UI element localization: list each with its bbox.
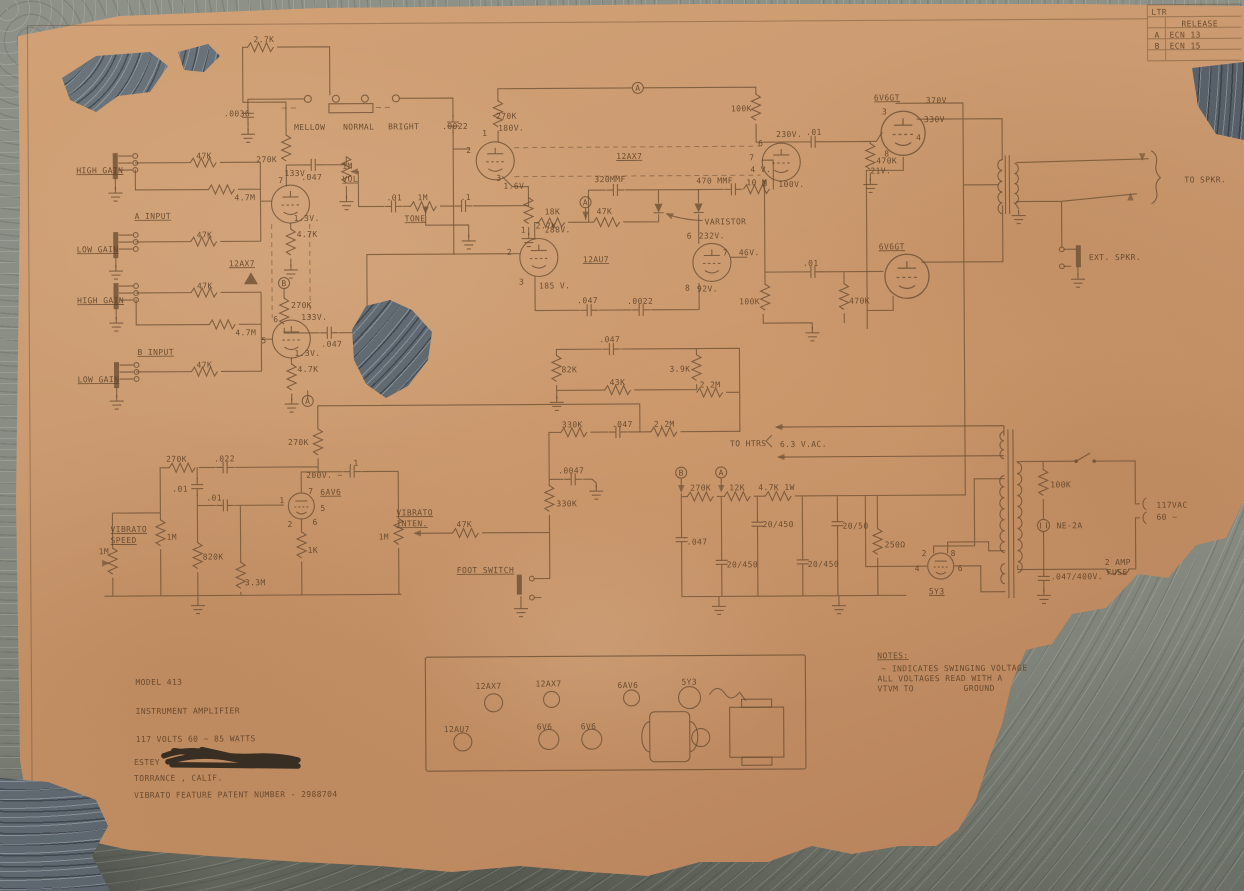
- schematic-label: 10 M: [746, 178, 767, 187]
- schematic-label: 12AX7: [535, 679, 561, 688]
- tube-6av6: [288, 493, 314, 519]
- schematic-label: 6: [687, 232, 692, 241]
- schematic-label: ALL VOLTAGES READ WITH A: [877, 674, 1002, 684]
- schematic-label: 270K: [690, 483, 711, 492]
- schematic-label: 20/450: [727, 560, 758, 569]
- schematic-label: RELEASE: [1181, 19, 1218, 28]
- schematic-label: VIBRATO: [110, 525, 147, 534]
- schematic-label: 20/450: [762, 520, 793, 529]
- warning-triangle-icon: [244, 272, 258, 284]
- schematic-label: 21V.: [870, 166, 891, 175]
- schematic-label: 1M: [99, 547, 109, 556]
- schematic-label: .0022: [627, 297, 653, 306]
- schematic-label: 5: [320, 504, 325, 513]
- schematic-label: 2.7K: [253, 35, 274, 44]
- schematic-label: ESTEY: [134, 758, 160, 767]
- schematic-label: 60 ~: [1156, 513, 1177, 522]
- schematic-label: .047: [599, 335, 620, 344]
- schematic-label: 1: [521, 226, 526, 235]
- schematic-label: 46V.: [739, 248, 760, 257]
- schematic-label: 7: [308, 487, 313, 496]
- schematic-label: 4.7K: [297, 230, 318, 239]
- schematic-label: 1K: [308, 546, 318, 555]
- schematic-label: 2: [922, 549, 927, 558]
- schematic-label: 6: [958, 564, 963, 573]
- schematic-label: 1: [482, 129, 487, 138]
- schematic-label: 12K: [729, 483, 745, 492]
- schematic-label: 47K: [456, 520, 472, 529]
- schematic-label: 82K: [562, 365, 578, 374]
- schematic-label: 7: [278, 176, 283, 185]
- schematic-label: 117VAC: [1156, 501, 1187, 510]
- schematic-label: 5: [261, 336, 266, 345]
- schematic-label: TONE: [405, 214, 426, 223]
- schematic-label: 12AX7: [475, 682, 501, 691]
- schematic-label: 5Y3: [681, 678, 697, 687]
- schematic-label: 230V.: [776, 130, 802, 139]
- schematic-label: 43K: [610, 378, 626, 387]
- schematic-label: .0047: [558, 466, 584, 475]
- schematic-label: TO HTRS: [730, 439, 767, 448]
- schematic-label: .0022: [442, 122, 468, 131]
- schematic-label: MODEL 413: [135, 678, 182, 687]
- schematic-label: 100K: [731, 104, 752, 113]
- schematic-label: 4.7M: [235, 328, 256, 337]
- schematic-label: 270K: [166, 455, 187, 464]
- schematic-label: 470K: [849, 296, 870, 305]
- schematic-label: 320MMF: [594, 175, 625, 184]
- schematic-label: .01: [806, 128, 822, 137]
- schematic-label: 47K: [197, 281, 213, 290]
- schematic-label: 330K: [562, 420, 583, 429]
- schematic-label: ECN 13: [1169, 30, 1200, 39]
- schematic-label: GROUND: [963, 684, 994, 693]
- schematic-label: 2: [287, 520, 292, 529]
- schematic-label: 92V.: [697, 284, 718, 293]
- schematic-label: 1M: [342, 162, 352, 171]
- photo-of-schematic: HIGH GAINLOW GAINHIGH GAINLOW GAINA INPU…: [0, 0, 1244, 891]
- schematic-svg: HIGH GAINLOW GAINHIGH GAINLOW GAINA INPU…: [0, 0, 1244, 891]
- schematic-label: 4.7K: [298, 365, 319, 374]
- schematic-label: MELLOW: [294, 123, 325, 132]
- schematic-label: .01: [172, 485, 188, 494]
- schematic-label: 12AU7: [583, 255, 609, 264]
- schematic-label: LOW GAIN: [78, 375, 120, 384]
- schematic-label: SPEED: [111, 536, 137, 545]
- tube-12ax7-d: [762, 143, 800, 181]
- power-supply-section: [675, 465, 1005, 615]
- schematic-label: 3.9K: [670, 365, 691, 374]
- schematic-label: B: [679, 469, 684, 478]
- schematic-label: 1.3V.: [294, 349, 320, 358]
- schematic-label: 200V. ~: [306, 471, 343, 480]
- schematic-label: 47K: [196, 151, 212, 160]
- schematic-label: LTR: [1151, 8, 1167, 17]
- tube-12ax7-c: [476, 142, 514, 180]
- schematic-label: 330V: [924, 115, 945, 124]
- schematic-label: .047: [321, 340, 342, 349]
- schematic-label: VIBRATO: [396, 508, 433, 517]
- schematic-label: TORRANCE , CALIF.: [134, 773, 223, 783]
- schematic-label: .047: [612, 420, 633, 429]
- schematic-label: 1M: [379, 532, 389, 541]
- schematic-label: A: [583, 198, 588, 207]
- schematic-label: .01: [206, 493, 222, 502]
- schematic-label: 2: [507, 248, 512, 257]
- vibrato-injection-section: [414, 424, 1005, 618]
- schematic-label: 2: [466, 146, 471, 155]
- schematic-label: 470 MMF: [696, 176, 733, 185]
- chassis-layout-section: [425, 655, 806, 771]
- schematic-label: 6: [312, 518, 317, 527]
- schematic-label: .01: [803, 259, 819, 268]
- schematic-label: 133V.: [301, 313, 327, 322]
- schematic-label: 1: [279, 496, 284, 505]
- schematic-label: ~ INDICATES SWINGING VOLTAGE: [881, 664, 1027, 674]
- schematic-label: VTVM TO: [877, 684, 914, 693]
- tube-6v6gt-2: [885, 254, 929, 298]
- schematic-label: 1M: [417, 193, 427, 202]
- schematic-label: B: [281, 279, 286, 288]
- schematic-label: 47K: [196, 361, 212, 370]
- schematic-label: 100K: [739, 297, 760, 306]
- schematic-label: 47K: [197, 230, 213, 239]
- schematic-label: FUSE: [1107, 568, 1128, 577]
- schematic-label: 1.6V: [503, 182, 524, 191]
- schematic-label: 6: [758, 139, 763, 148]
- schematic-label: 7: [723, 248, 728, 257]
- schematic-label: HIGH GAIN: [76, 166, 123, 175]
- schematic-label: A: [1154, 31, 1159, 40]
- schematic-label: 12AU7: [444, 725, 470, 734]
- tube-12au7-a: [520, 238, 558, 276]
- schematic-label: 4: [916, 133, 921, 142]
- schematic-label: NE-2A: [1056, 521, 1082, 530]
- schematic-label: .047/400V.: [1051, 572, 1103, 581]
- schematic-label: 6V6GT: [879, 242, 905, 251]
- schematic-label: VARISTOR: [705, 217, 747, 226]
- schematic-label: B: [1155, 42, 1160, 51]
- schematic-label: 1.3V.: [294, 214, 320, 223]
- schematic-label: 4 V.: [750, 165, 771, 174]
- schematic-label: 18K: [545, 207, 561, 216]
- schematic-label: A INPUT: [135, 212, 172, 221]
- schematic-label: A: [719, 468, 724, 477]
- schematic-label: 185 V.: [539, 281, 570, 290]
- schematic-label: 6AV6: [320, 488, 341, 497]
- schematic-label: .022: [214, 454, 235, 463]
- schematic-label: 20/50: [842, 521, 868, 530]
- redaction-scribble: [164, 749, 298, 767]
- schematic-label: 6.3 V.AC.: [780, 440, 827, 449]
- schematic-label: 2 AMP: [1105, 558, 1131, 567]
- schematic-label: 288V.: [545, 225, 571, 234]
- schematic-label: VOL: [342, 175, 358, 184]
- schematic-label: 4.7K 1W: [758, 483, 795, 492]
- schematic-label: B INPUT: [137, 348, 174, 357]
- schematic-label: FOOT SWITCH: [457, 566, 514, 575]
- schematic-label: ECN 15: [1170, 41, 1201, 50]
- schematic-label: TO SPKR.: [1184, 175, 1226, 184]
- vibrato-oscillator-section: [102, 404, 641, 614]
- schematic-label: LOW GAIN: [77, 245, 119, 254]
- schematic-label: 7: [749, 153, 754, 162]
- schematic-label: 370V: [926, 96, 947, 105]
- schematic-label: 820K: [203, 552, 224, 561]
- output-stage-section: [866, 102, 1162, 496]
- schematic-label: 1M: [167, 533, 177, 542]
- schematic-label: .047: [301, 173, 322, 182]
- schematic-label: 47K: [597, 207, 613, 216]
- schematic-label: 6AV6: [617, 681, 638, 690]
- neon-lamp-icon: [1037, 519, 1049, 531]
- schematic-label: 6V6GT: [874, 93, 900, 102]
- schematic-label: 12AX7: [616, 152, 642, 161]
- schematic-label: HIGH GAIN: [77, 296, 124, 305]
- schematic-label: .1: [460, 193, 470, 202]
- schematic-label: 8: [884, 149, 889, 158]
- schematic-label: 6: [273, 315, 278, 324]
- schematic-label: NOTES:: [877, 651, 908, 660]
- schematic-label: 6V6: [537, 722, 553, 731]
- schematic-label: .0036: [224, 109, 250, 118]
- sheet-border: [27, 4, 1244, 793]
- schematic-label: 4: [915, 564, 920, 573]
- schematic-label: 180V.: [498, 124, 524, 133]
- schematic-label: 250Ω: [885, 540, 906, 549]
- schematic-label: .047: [577, 296, 598, 305]
- schematic-label: 2.2M: [654, 420, 675, 429]
- schematic-label: INSTRUMENT AMPLIFIER: [136, 706, 240, 716]
- schematic-label: 270K: [288, 438, 309, 447]
- schematic-label: 5Y3: [929, 587, 945, 596]
- schematic-label: 3: [519, 278, 524, 287]
- schematic-label: A: [305, 397, 310, 406]
- schematic-label: 117 VOLTS 60 ~ 85 WATTS: [136, 734, 256, 744]
- schematic-label: .047: [687, 537, 708, 546]
- schematic-label: 6V6: [581, 722, 597, 731]
- schematic-label: A: [635, 84, 640, 93]
- schematic-label: 8: [951, 549, 956, 558]
- schematic-label: 100V.: [778, 180, 804, 189]
- schematic-label: 8: [685, 284, 690, 293]
- schematic-label: 3: [882, 107, 887, 116]
- schematic-label: BRIGHT: [388, 122, 419, 131]
- schematic-label: 270K: [256, 155, 277, 164]
- schematic-label: 2.2M: [700, 380, 721, 389]
- schematic-drawing: HIGH GAINLOW GAINHIGH GAINLOW GAINA INPU…: [0, 0, 1244, 891]
- schematic-label: EXT. SPKR.: [1089, 253, 1141, 262]
- schematic-label: 270K: [496, 112, 517, 121]
- schematic-label: .01: [386, 193, 402, 202]
- schematic-label: .1: [348, 459, 358, 468]
- schematic-label: NORMAL: [343, 123, 374, 132]
- schematic-label: VIBRATO FEATURE PATENT NUMBER - 2988704: [134, 790, 338, 800]
- schematic-label: 330K: [556, 499, 577, 508]
- schematic-label: 100K: [1050, 480, 1071, 489]
- schematic-label: 4.7M: [234, 193, 255, 202]
- schematic-label: 232V.: [699, 231, 725, 240]
- schematic-label: 3: [496, 174, 501, 183]
- schematic-label: INTEN.: [396, 519, 427, 528]
- schematic-label: 20/450: [808, 560, 839, 569]
- schematic-label: 270K: [291, 301, 312, 310]
- schematic-label: 3.3M: [245, 578, 266, 587]
- schematic-label: 12AX7: [229, 259, 255, 268]
